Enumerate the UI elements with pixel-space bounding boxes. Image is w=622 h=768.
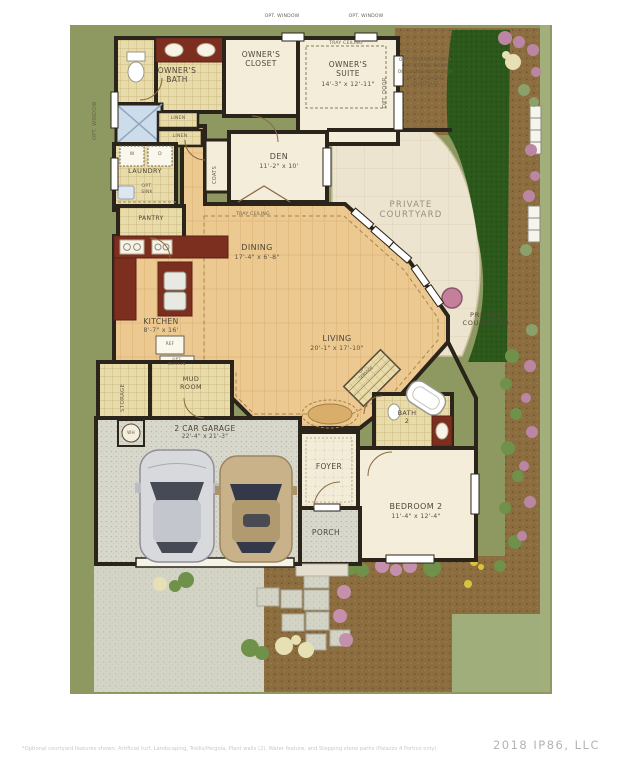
sink bbox=[197, 44, 215, 57]
tray-ceiling-dining-label: TRAY CEILING bbox=[218, 212, 288, 218]
nook-table bbox=[308, 404, 352, 424]
bedroom-2-label: BEDROOM 2 bbox=[364, 502, 468, 512]
kitchen-label: KITCHEN bbox=[130, 317, 192, 326]
opt-window-label-1: OPT. WINDOW bbox=[252, 14, 312, 20]
owners-suite-label: OWNER'S SUITE bbox=[300, 60, 396, 78]
den-dims: 11'-2" x 10' bbox=[236, 163, 322, 170]
sage-patch bbox=[452, 614, 540, 692]
sink bbox=[165, 44, 183, 57]
copyright-watermark: 2018 IP86, LLC bbox=[460, 738, 600, 752]
floor-plan-page: OWNER'S BATH OWNER'S CLOSET OWNER'S SUIT… bbox=[0, 0, 622, 768]
laundry-label: LAUNDRY bbox=[116, 168, 174, 176]
kitchen-dims: 8'-7" x 16' bbox=[130, 327, 192, 334]
opt-window-label-2: OPT. WINDOW bbox=[336, 14, 396, 20]
owners-closet-label: OWNER'S CLOSET bbox=[224, 50, 298, 68]
dryer-label: D bbox=[152, 152, 168, 158]
dining-dims: 17'-4" x 6'-8" bbox=[222, 254, 292, 261]
private-courtyard-side-label: PRIVATE COURTYARD bbox=[446, 312, 526, 328]
tray-ceiling-suite-label: TRAY CEILING bbox=[306, 41, 386, 47]
pantry-label: PANTRY bbox=[120, 215, 182, 222]
range bbox=[164, 272, 186, 290]
bedroom-2-dims: 11'-4" x 12'-4" bbox=[364, 513, 468, 520]
sink bbox=[436, 423, 448, 439]
foyer-room bbox=[300, 432, 358, 510]
dining-label: DINING bbox=[222, 243, 292, 253]
courtyard-options-label: OPT. COVERED PORCH OPT. SITTING ROOM OPT… bbox=[396, 58, 454, 88]
storage-label: STORAGE bbox=[120, 384, 126, 412]
coats-label: COATS bbox=[212, 166, 218, 184]
disclaimer-text: *Optional courtyard features shown: Arti… bbox=[22, 746, 436, 752]
laundry-sink bbox=[118, 186, 134, 199]
linen-2-label: LINEN bbox=[158, 134, 202, 140]
garage-dims: 22'-4" x 21'-3" bbox=[146, 434, 264, 440]
water-feature bbox=[442, 288, 462, 308]
car-silver bbox=[135, 450, 219, 562]
living-dims: 20'-1" x 17'-10" bbox=[282, 345, 392, 352]
linen-1-label: LINEN bbox=[158, 116, 198, 122]
car-tan bbox=[215, 456, 297, 562]
owners-bath-label: OWNER'S BATH bbox=[146, 66, 208, 84]
washer-label: W bbox=[124, 152, 140, 158]
garage-room bbox=[96, 418, 300, 567]
garage-label: 2 CAR GARAGE bbox=[146, 424, 264, 433]
opt-door-label: OPT. DOOR bbox=[382, 78, 388, 109]
porch-label: PORCH bbox=[298, 528, 354, 537]
opt-window-label-left: OPT. WINDOW bbox=[92, 101, 98, 140]
opt-built-in-label: OPT. BUILT-IN bbox=[158, 357, 196, 366]
mud-room-label: MUD ROOM bbox=[165, 376, 217, 392]
bath-2-label: BATH 2 bbox=[390, 410, 424, 426]
water-heater-label: WH bbox=[122, 430, 140, 435]
private-courtyard-label: PRIVATE COURTYARD bbox=[358, 200, 464, 220]
opt-sink-label: OPT. SINK bbox=[134, 184, 160, 195]
den-label: DEN bbox=[236, 152, 322, 162]
living-label: LIVING bbox=[282, 334, 392, 344]
toilet bbox=[127, 52, 145, 61]
ref-label: REF bbox=[156, 341, 184, 346]
foyer-label: FOYER bbox=[303, 462, 355, 471]
porch-step bbox=[296, 564, 348, 576]
